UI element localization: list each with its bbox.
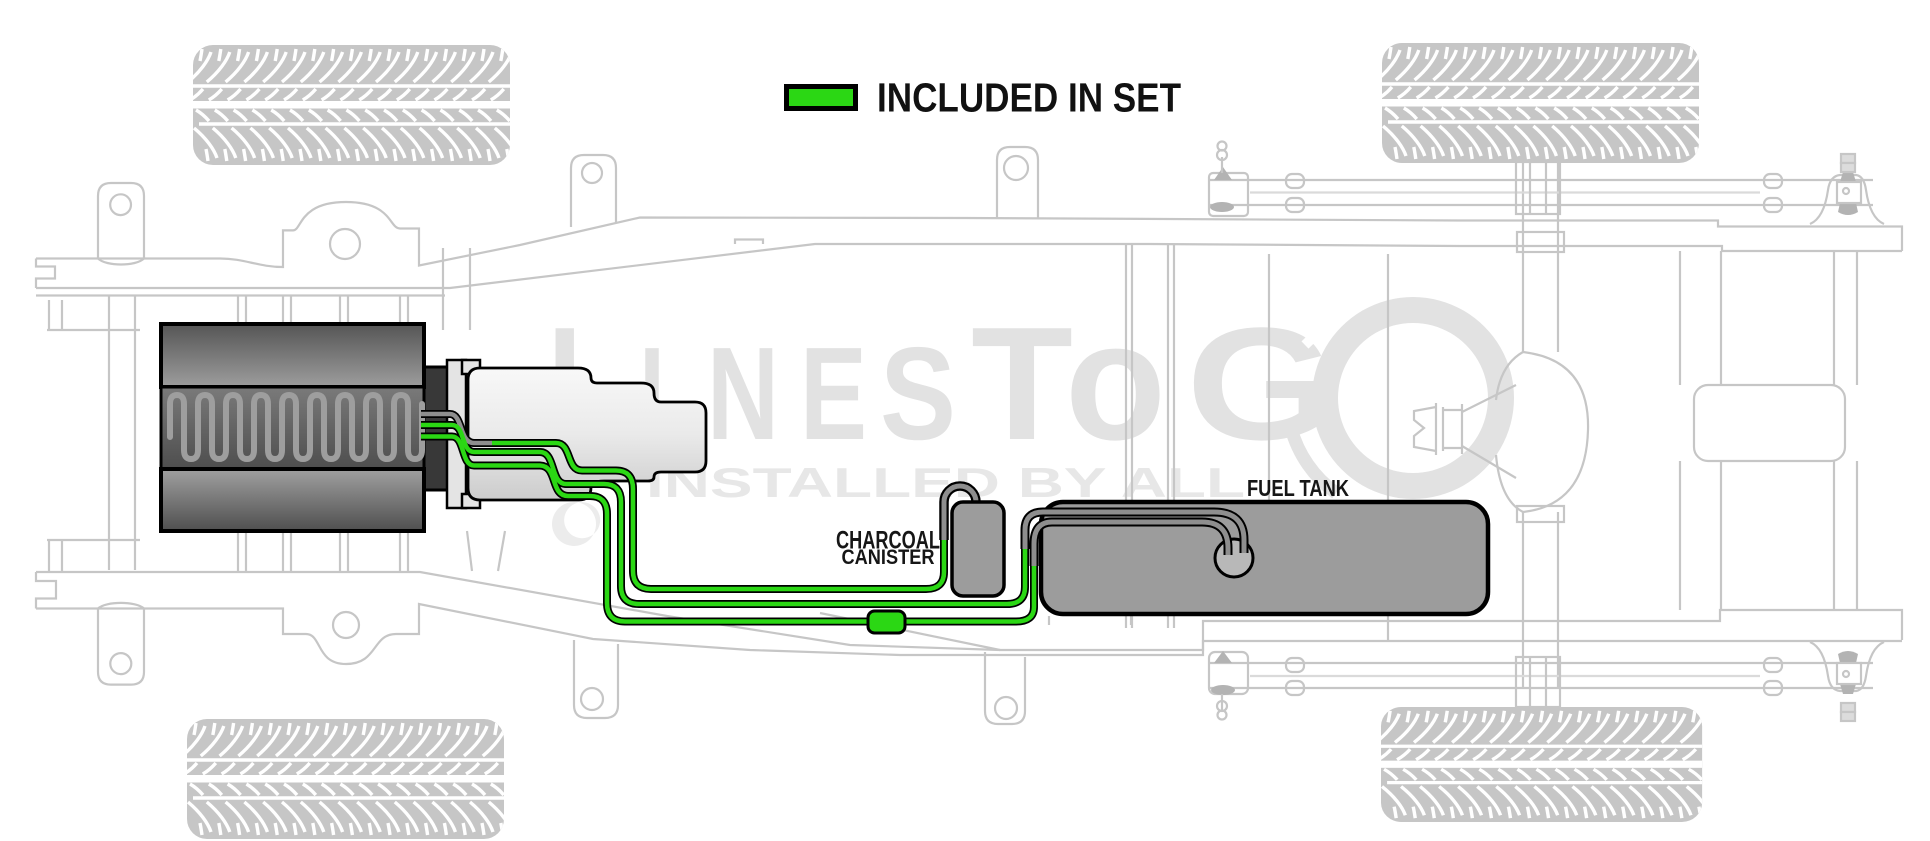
svg-text:T: T [971, 294, 1073, 474]
svg-text:S: S [880, 320, 956, 467]
svg-text:INCLUDED IN SET: INCLUDED IN SET [877, 75, 1181, 121]
svg-text:N: N [707, 320, 779, 467]
svg-text:o: o [1065, 287, 1166, 475]
svg-text:E: E [800, 320, 867, 467]
svg-text:CANISTER: CANISTER [842, 546, 935, 569]
svg-text:FUEL TANK: FUEL TANK [1247, 475, 1349, 501]
